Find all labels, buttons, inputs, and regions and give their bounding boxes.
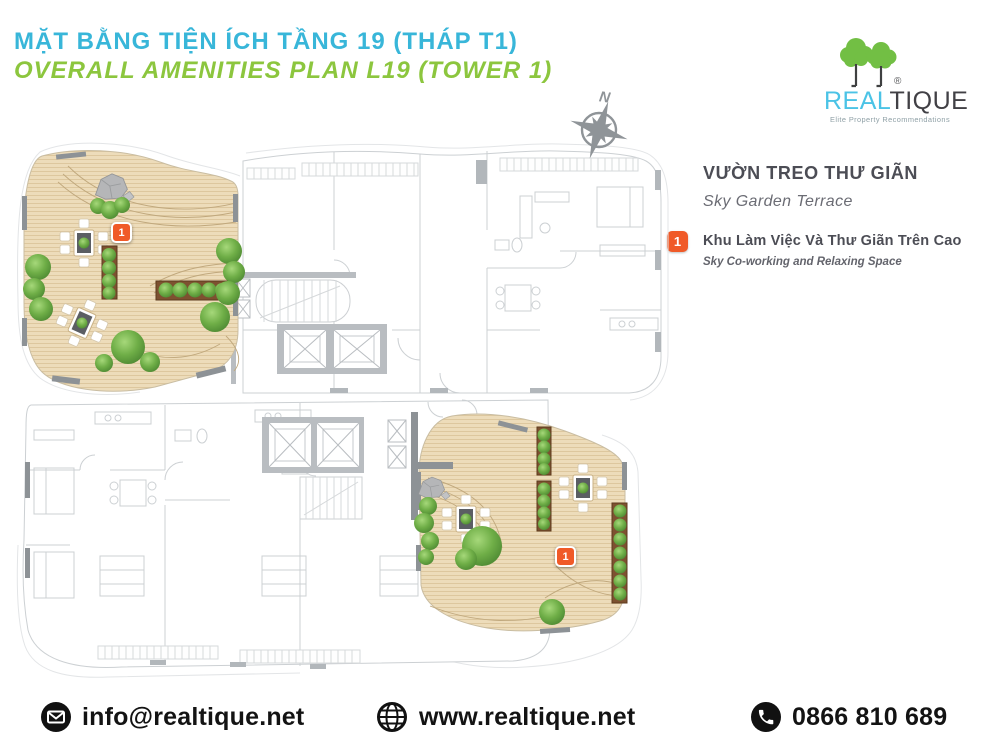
contact-email[interactable]: info@realtique.net <box>40 698 304 736</box>
terrace-northwest <box>18 143 245 394</box>
contact-website-text: www.realtique.net <box>419 703 635 732</box>
contact-email-text: info@realtique.net <box>82 703 304 732</box>
amenity-marker-2: 1 <box>555 546 576 567</box>
contact-phone-text: 0866 810 689 <box>792 703 947 732</box>
terrace-southeast <box>411 412 627 634</box>
compass-north-label: N <box>598 88 612 107</box>
contact-phone[interactable]: 0866 810 689 <box>750 698 947 736</box>
floor-plan: N <box>0 0 1000 750</box>
email-icon <box>40 701 72 733</box>
amenity-marker-1: 1 <box>111 222 132 243</box>
phone-icon <box>750 701 782 733</box>
contact-website[interactable]: www.realtique.net <box>375 698 635 736</box>
globe-icon <box>375 700 409 734</box>
amenities-plan-page: MẶT BẰNG TIỆN ÍCH TẦNG 19 (THÁP T1) OVER… <box>0 0 1000 750</box>
